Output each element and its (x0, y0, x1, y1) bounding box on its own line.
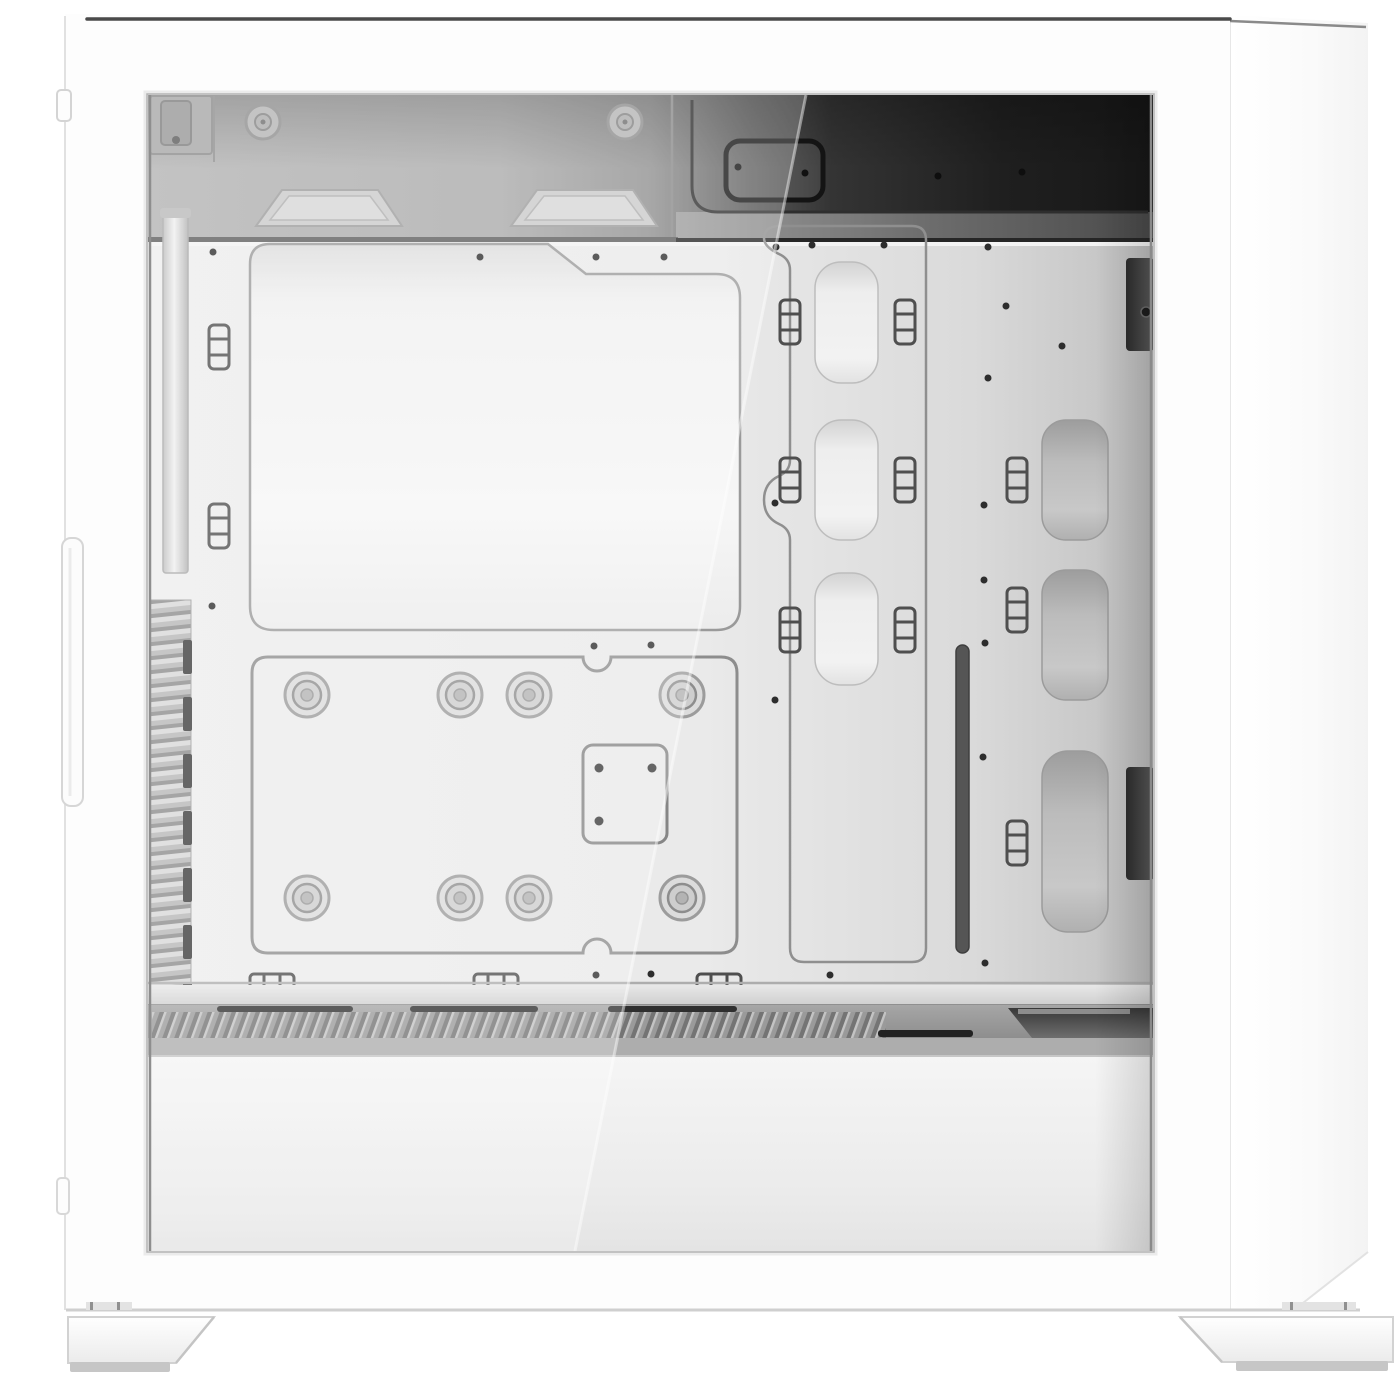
case-side-panel (1230, 15, 1368, 1310)
cable-cutouts (815, 262, 878, 685)
case-illustration (0, 0, 1400, 1400)
glass-side-window (148, 95, 1160, 1251)
case-foot-front (68, 1317, 214, 1372)
thin-vent-slot (956, 645, 969, 953)
case-foot-rear (1180, 1317, 1393, 1371)
pc-case-product-photo (0, 0, 1400, 1400)
